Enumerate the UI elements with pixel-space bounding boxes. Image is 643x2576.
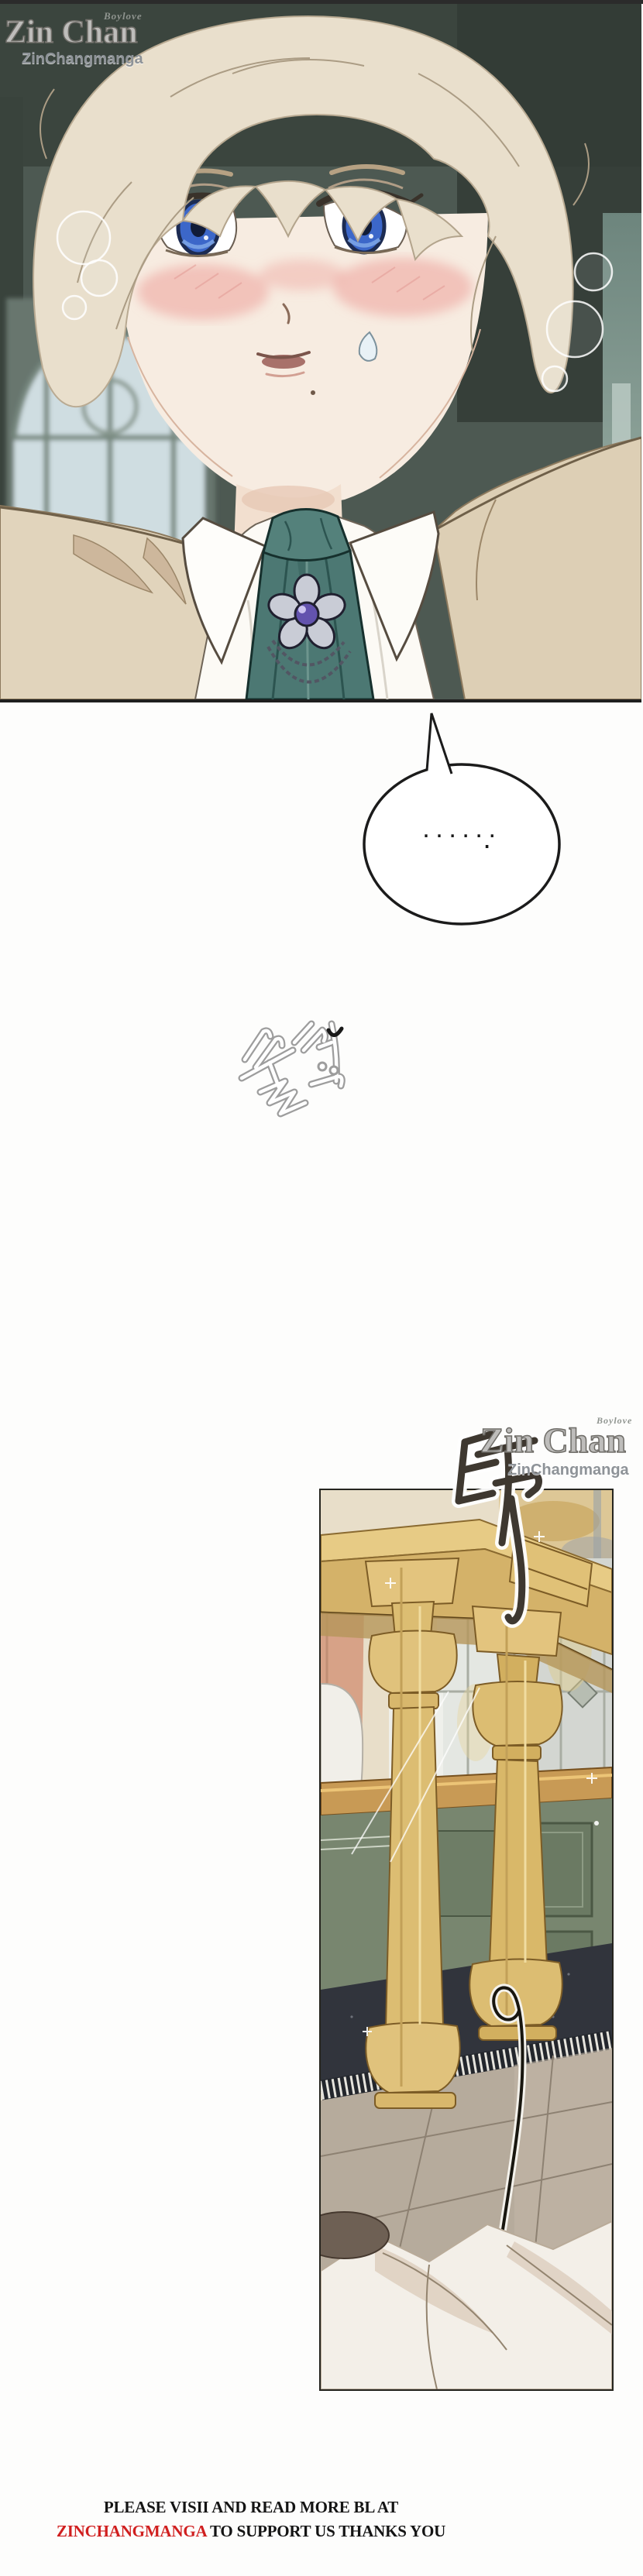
panel-closeup-artwork xyxy=(0,4,641,699)
manga-page: Boylove Zin Chan ZinChangmanga ...... . xyxy=(0,0,643,2576)
footer-line2: ZINCHANGMANGA TO SUPPORT US THANKS YOU xyxy=(0,2519,502,2543)
speech-bubble xyxy=(341,701,573,941)
footer-line1: PLEASE VISII AND READ MORE BL AT xyxy=(0,2495,502,2519)
footer-site-name: ZINCHANGMANGA xyxy=(57,2522,206,2540)
speech-bubble-trailing-dot: . xyxy=(482,833,492,853)
sfx-gulp xyxy=(217,1007,364,1123)
panel-closeup: Boylove Zin Chan ZinChangmanga xyxy=(0,4,641,702)
sfx-table xyxy=(434,1425,620,1634)
footer-note: PLEASE VISII AND READ MORE BL AT ZINCHAN… xyxy=(0,2495,502,2543)
mole xyxy=(311,390,315,395)
footer-line2-rest: TO SUPPORT US THANKS YOU xyxy=(206,2522,445,2540)
